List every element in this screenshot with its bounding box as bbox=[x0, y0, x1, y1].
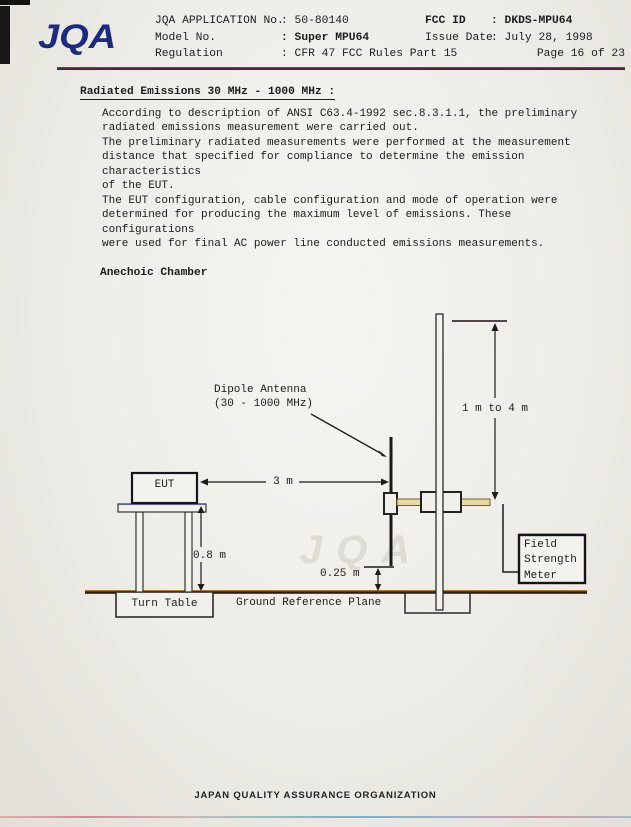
paragraph-2: The preliminary radiated measurements we… bbox=[102, 136, 602, 194]
jqa-logo: JQA bbox=[38, 18, 161, 56]
dim-3m-arrow-right bbox=[381, 479, 389, 486]
paragraph-3: The EUT configuration, cable configurati… bbox=[102, 194, 602, 252]
dim-0.8m-arrow-down bbox=[198, 584, 205, 591]
dim-0.25m-arrow-down bbox=[375, 584, 381, 591]
distance-dimension-label: 3 m bbox=[266, 475, 300, 489]
turn-table-label: Turn Table bbox=[116, 597, 213, 611]
dim-0.25m-arrow-up bbox=[375, 568, 381, 575]
page-number: Page 16 of 23 bbox=[425, 46, 625, 63]
section-body: According to description of ANSI C63.4-1… bbox=[102, 107, 602, 252]
fcc-id-label: FCC ID bbox=[425, 13, 491, 30]
dim-1to4-arrow-up bbox=[492, 323, 499, 331]
issue-date-value: : July 28, 1998 bbox=[491, 30, 593, 47]
table-height-dimension-label: 0.8 m bbox=[193, 549, 235, 563]
footer-organization-name: JAPAN QUALITY ASSURANCE ORGANIZATION bbox=[0, 790, 631, 801]
table-leg-left bbox=[136, 512, 143, 592]
header-row-model: Model No.: Super MPU64 bbox=[155, 30, 425, 47]
antenna-element-clamp bbox=[384, 493, 397, 514]
dim-3m-arrow-left bbox=[200, 479, 208, 486]
header-row-issue-date: Issue Date: July 28, 1998 bbox=[425, 30, 625, 47]
dipole-label-arrowhead bbox=[378, 450, 387, 457]
eut-label: EUT bbox=[132, 478, 197, 492]
table-top bbox=[118, 504, 206, 512]
table-leg-right bbox=[185, 512, 192, 592]
antenna-boom-right bbox=[461, 499, 490, 506]
issue-date-label: Issue Date bbox=[425, 30, 491, 47]
fcc-id-value: : DKDS-MPU64 bbox=[491, 13, 572, 30]
dim-1to4-arrow-down bbox=[492, 492, 499, 500]
paragraph-1: According to description of ANSI C63.4-1… bbox=[102, 107, 602, 136]
header-row-regulation: Regulation: CFR 47 FCC Rules Part 15 bbox=[155, 46, 425, 63]
application-no-value: : 50-80140 bbox=[281, 13, 349, 30]
dipole-label-arrow-line bbox=[311, 414, 382, 454]
header-right-block: FCC ID: DKDS-MPU64 Issue Date: July 28, … bbox=[425, 13, 625, 63]
meter-cable bbox=[503, 504, 518, 572]
header-row-application: JQA APPLICATION No.: 50-80140 bbox=[155, 13, 425, 30]
dipole-antenna-label: Dipole Antenna (30 - 1000 MHz) bbox=[214, 383, 313, 411]
header-row-fccid: FCC ID: DKDS-MPU64 bbox=[425, 13, 625, 30]
antenna-boom-left bbox=[397, 499, 421, 506]
antenna-bottom-dimension-label: 0.25 m bbox=[320, 567, 368, 581]
diagram-title: Anechoic Chamber bbox=[100, 267, 207, 279]
regulation-label: Regulation bbox=[155, 46, 281, 63]
model-no-value: : Super MPU64 bbox=[281, 30, 369, 47]
ground-line-fringe bbox=[85, 590, 587, 591]
section-title: Radiated Emissions 30 MHz - 1000 MHz : bbox=[80, 86, 335, 100]
application-no-label: JQA APPLICATION No. bbox=[155, 13, 281, 30]
header-left-block: JQA APPLICATION No.: 50-80140 Model No.:… bbox=[155, 13, 425, 63]
model-no-label: Model No. bbox=[155, 30, 281, 47]
ground-reference-plane-label: Ground Reference Plane bbox=[236, 596, 381, 610]
antenna-height-dimension-label: 1 m to 4 m bbox=[458, 402, 532, 416]
field-strength-meter-label: Field Strength Meter bbox=[524, 538, 577, 584]
antenna-mast bbox=[436, 314, 443, 610]
scanned-report-page: { "header": { "logo_text": "JQA", "left"… bbox=[0, 0, 631, 827]
